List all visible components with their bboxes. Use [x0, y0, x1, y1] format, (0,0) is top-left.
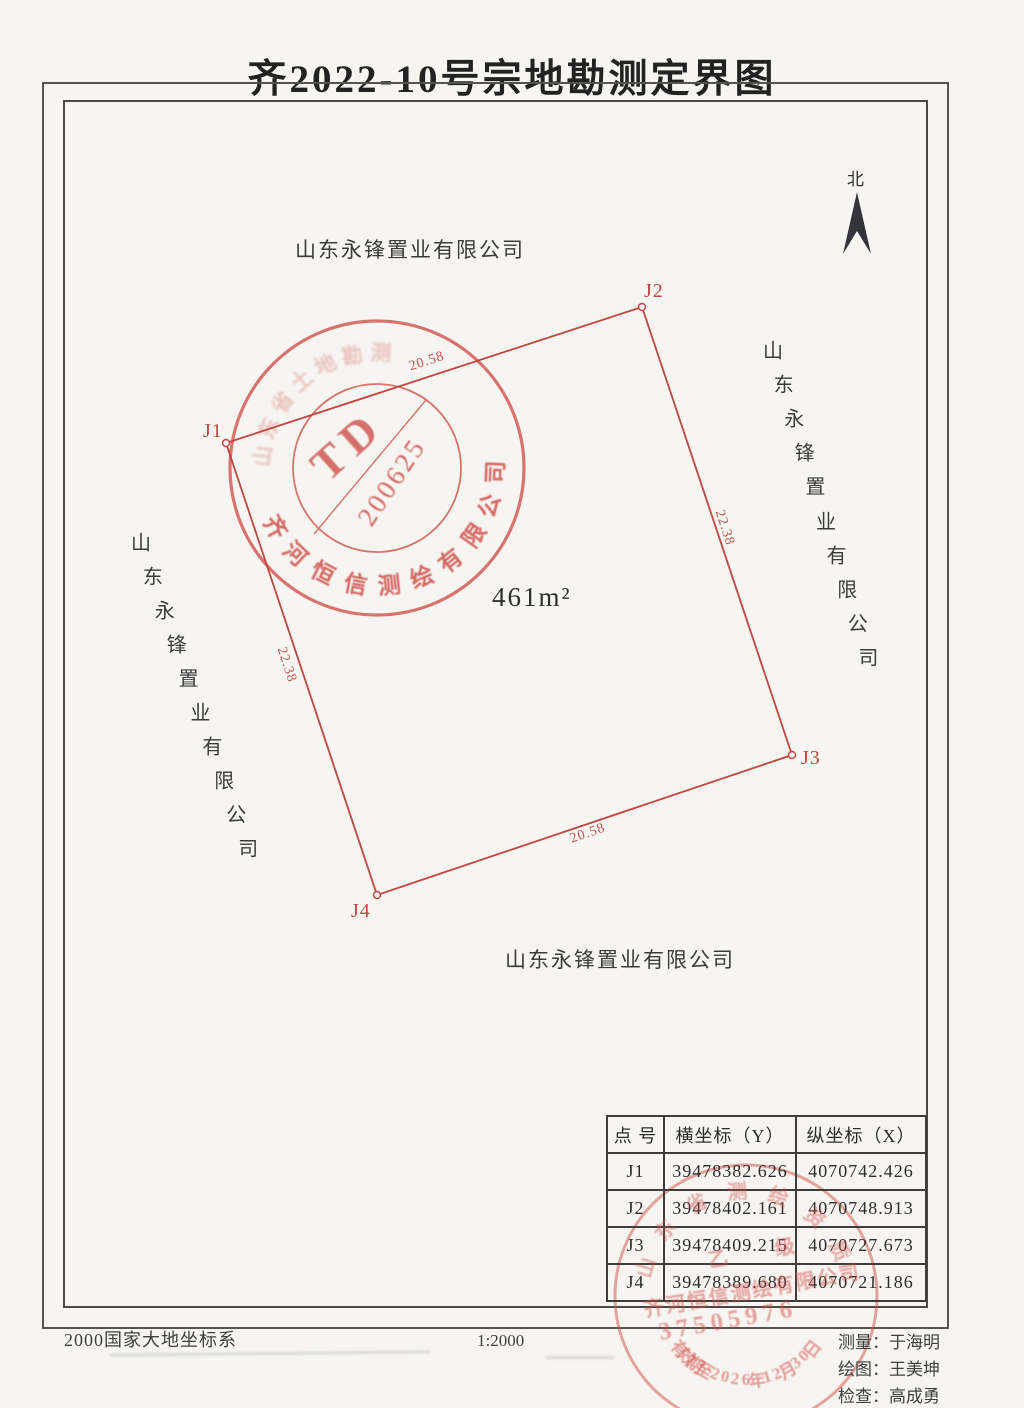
seal-char: 测	[376, 565, 402, 601]
owner-char: 有	[202, 731, 222, 760]
vertex-marker-j2	[639, 304, 646, 311]
table-cell: 4070742.426	[796, 1153, 926, 1190]
vertex-label-j3: J3	[801, 747, 821, 770]
credit-surveyor: 测量：于海明	[838, 1328, 940, 1353]
vertex-marker-j3	[789, 752, 796, 759]
owner-char: 山	[763, 335, 783, 364]
owner-char: 业	[816, 505, 836, 534]
credit-checker: 检查：高成勇	[838, 1382, 940, 1407]
owner-char: 置	[805, 471, 825, 500]
survey-map-page: 齐2022-10号宗地勘测定界图 北 J1 J2 J3 J4 20.58 22.…	[0, 0, 1024, 1408]
vertex-marker-j4	[374, 892, 381, 899]
owner-char: 锋	[795, 437, 815, 466]
footer-scale: 1:2000	[477, 1331, 524, 1351]
owner-char: 司	[858, 641, 878, 670]
north-label: 北	[847, 165, 864, 190]
north-arrow-icon	[843, 192, 871, 254]
owner-char: 业	[191, 697, 211, 726]
col-header-y: 横坐标（Y）	[664, 1116, 796, 1153]
table-row: J139478382.6264070742.426	[607, 1153, 926, 1190]
col-header-x: 纵坐标（X）	[796, 1116, 926, 1153]
owner-label-top: 山东永锋置业有限公司	[295, 234, 525, 264]
area-label: 461m²	[492, 582, 572, 613]
table-header-row: 点 号 横坐标（Y） 纵坐标（X）	[607, 1116, 926, 1153]
vertex-label-j2: J2	[644, 280, 664, 303]
vertex-marker-j1	[223, 440, 230, 447]
seal-char: 山	[246, 444, 278, 468]
owner-char: 公	[848, 607, 868, 636]
owner-char: 司	[238, 833, 258, 862]
owner-char: 锋	[167, 629, 187, 658]
owner-char: 永	[784, 403, 804, 432]
vertex-label-j4: J4	[351, 900, 371, 923]
seal-char: 测	[726, 1175, 748, 1206]
owner-label-bottom: 山东永锋置业有限公司	[505, 944, 735, 974]
vertex-label-j1: J1	[203, 420, 223, 443]
credit-drafter: 绘图：王美坤	[838, 1355, 940, 1380]
owner-char: 永	[155, 595, 175, 624]
owner-char: 公	[226, 799, 246, 828]
owner-char: 东	[774, 369, 794, 398]
owner-char: 有	[827, 539, 847, 568]
owner-char: 东	[143, 561, 163, 590]
owner-char: 限	[837, 573, 857, 602]
footer-datum: 2000国家大地坐标系	[64, 1326, 237, 1352]
seal-char: 测	[370, 337, 392, 368]
pencil-mark	[545, 1356, 615, 1359]
owner-char: 置	[179, 663, 199, 692]
seal-char: 司	[476, 460, 511, 484]
owner-char: 限	[214, 765, 234, 794]
owner-char: 山	[131, 527, 151, 556]
col-header-point: 点 号	[607, 1116, 664, 1153]
table-cell: J1	[607, 1153, 664, 1190]
table-cell: 4070727.673	[796, 1227, 926, 1264]
